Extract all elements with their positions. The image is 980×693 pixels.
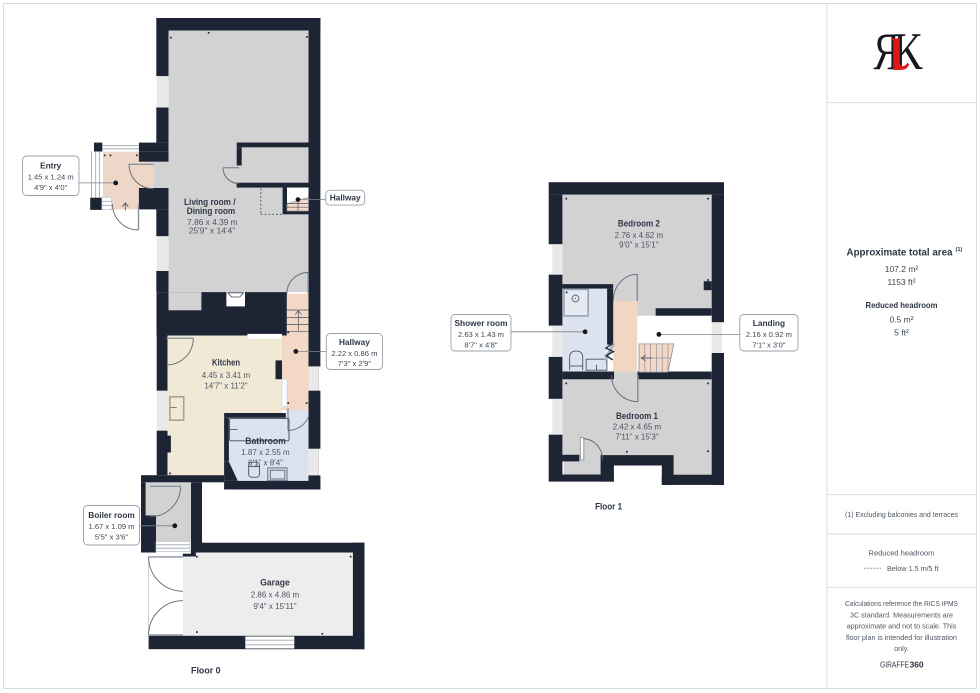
svg-text:Kitchen: Kitchen	[212, 358, 240, 368]
svg-text:9'4" x 15'11": 9'4" x 15'11"	[253, 602, 296, 611]
svg-text:Entry: Entry	[40, 161, 62, 171]
svg-text:Hallway: Hallway	[330, 193, 361, 203]
svg-text:7'3" x 2'9": 7'3" x 2'9"	[338, 359, 372, 368]
svg-text:2.16 x 0.92 m: 2.16 x 0.92 m	[746, 330, 792, 339]
svg-text:360: 360	[910, 661, 925, 670]
svg-text:Bedroom 1: Bedroom 1	[616, 411, 658, 421]
svg-text:Below 1.5 m/5 ft: Below 1.5 m/5 ft	[887, 564, 939, 573]
svg-text:2.86 x 4.86 m: 2.86 x 4.86 m	[251, 591, 300, 600]
svg-text:1.87 x 2.55 m: 1.87 x 2.55 m	[241, 448, 290, 457]
svg-text:2.42 x 4.65 m: 2.42 x 4.65 m	[613, 423, 662, 432]
svg-text:Calculations reference the RIC: Calculations reference the RICS IPMS	[845, 599, 958, 608]
svg-text:7'11" x 15'3": 7'11" x 15'3"	[615, 433, 658, 442]
svg-text:approximate and not to scale.: approximate and not to scale. This	[847, 622, 957, 631]
svg-text:Shower room: Shower room	[454, 318, 507, 328]
svg-text:Garage: Garage	[260, 577, 290, 587]
svg-text:Hallway: Hallway	[339, 337, 370, 347]
svg-text:1.67 x 1.09 m: 1.67 x 1.09 m	[88, 522, 134, 531]
svg-text:5 ft²: 5 ft²	[894, 328, 909, 338]
svg-text:4.45 x 3.41 m: 4.45 x 3.41 m	[202, 371, 251, 380]
svg-text:7'1" x 3'0": 7'1" x 3'0"	[752, 340, 786, 349]
svg-text:25'9" x 14'4": 25'9" x 14'4"	[189, 226, 236, 235]
svg-text:Bathroom: Bathroom	[245, 436, 286, 446]
svg-text:1.45 x 1.24 m: 1.45 x 1.24 m	[28, 173, 74, 182]
svg-text:Floor 0: Floor 0	[191, 666, 221, 677]
svg-text:6'1" x 8'4": 6'1" x 8'4"	[248, 458, 283, 467]
svg-text:5'5" x 3'6": 5'5" x 3'6"	[95, 533, 129, 542]
svg-text:Reduced headroom: Reduced headroom	[866, 300, 938, 310]
svg-text:9'0" x 15'1": 9'0" x 15'1"	[619, 241, 659, 250]
svg-text:floor plan is intended for ill: floor plan is intended for illustration	[846, 633, 957, 642]
svg-text:Reduced headroom: Reduced headroom	[869, 549, 935, 558]
svg-text:2.22 x 0.86 m: 2.22 x 0.86 m	[331, 349, 377, 358]
svg-text:107.2 m²: 107.2 m²	[885, 264, 919, 274]
svg-text:(1): (1)	[956, 247, 963, 253]
svg-text:Approximate total area: Approximate total area	[847, 248, 953, 259]
svg-text:only.: only.	[894, 644, 909, 653]
svg-text:Landing: Landing	[753, 318, 785, 328]
svg-text:Bedroom 2: Bedroom 2	[618, 219, 660, 229]
svg-text:GIRAFFE: GIRAFFE	[880, 661, 909, 670]
svg-text:8'7" x 4'8": 8'7" x 4'8"	[464, 340, 498, 349]
svg-text:3C standard. Measurements are: 3C standard. Measurements are	[850, 610, 953, 619]
svg-text:1153 ft²: 1153 ft²	[887, 277, 915, 287]
svg-text:2.76 x 4.62 m: 2.76 x 4.62 m	[615, 231, 664, 240]
svg-text:2.63 x 1.43 m: 2.63 x 1.43 m	[458, 330, 504, 339]
svg-text:Floor 1: Floor 1	[595, 502, 623, 513]
svg-text:(1) Excluding balconies and te: (1) Excluding balconies and terraces	[845, 510, 958, 519]
svg-text:Dining room: Dining room	[187, 206, 236, 216]
svg-text:4'9" x 4'0": 4'9" x 4'0"	[34, 183, 68, 192]
svg-text:Boiler room: Boiler room	[88, 510, 135, 520]
svg-text:0.5 m²: 0.5 m²	[889, 315, 913, 325]
svg-text:14'7" x 11'2": 14'7" x 11'2"	[204, 382, 247, 391]
